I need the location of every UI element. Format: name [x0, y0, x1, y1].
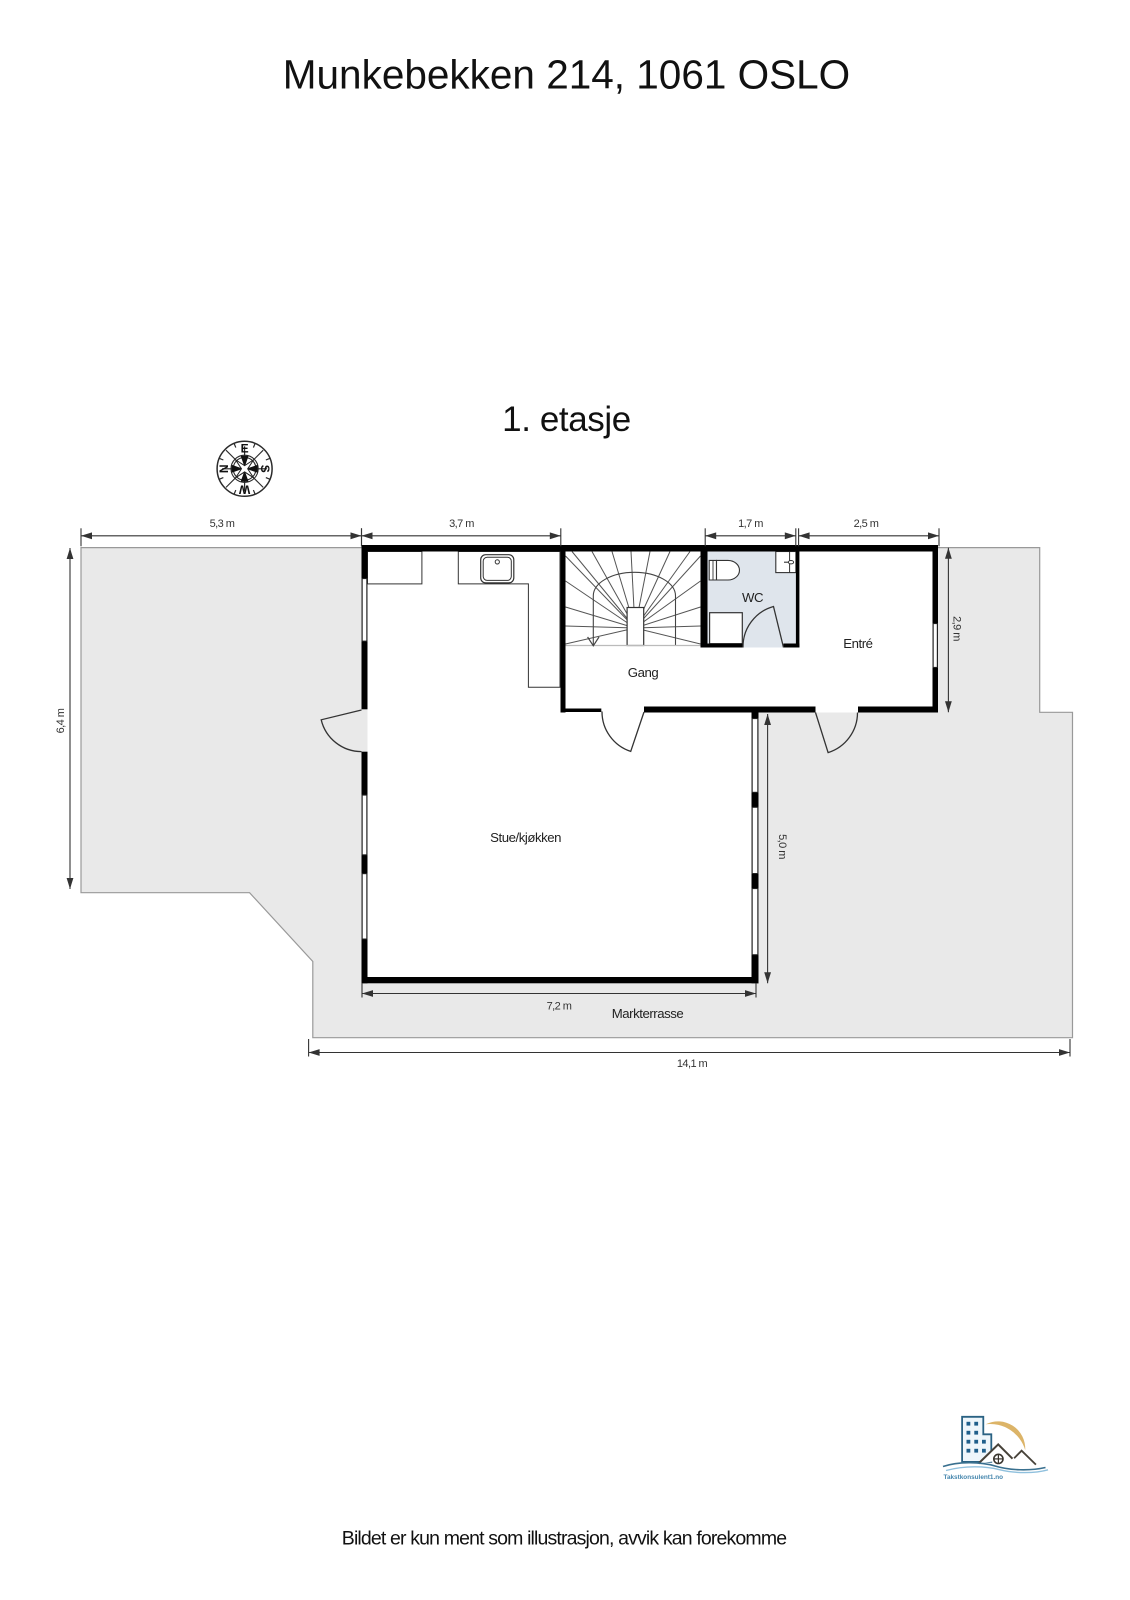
svg-text:1,7 m: 1,7 m	[738, 518, 763, 530]
svg-text:2,9 m: 2,9 m	[951, 616, 963, 641]
svg-text:1. etasje: 1. etasje	[502, 400, 631, 439]
svg-text:5,0 m: 5,0 m	[776, 834, 788, 859]
svg-text:14,1 m: 14,1 m	[677, 1058, 708, 1070]
svg-text:Markterrasse: Markterrasse	[612, 1006, 684, 1021]
svg-text:Bildet er kun ment som illustr: Bildet er kun ment som illustrasjon, avv…	[342, 1528, 786, 1550]
svg-text:S: S	[258, 465, 272, 473]
svg-text:Stue/kjøkken: Stue/kjøkken	[490, 830, 561, 845]
svg-text:N: N	[217, 464, 231, 473]
svg-text:3,7 m: 3,7 m	[449, 518, 474, 530]
svg-text:E: E	[241, 441, 249, 455]
svg-text:Gang: Gang	[628, 665, 659, 680]
svg-text:5,3 m: 5,3 m	[210, 518, 235, 530]
svg-text:6,4 m: 6,4 m	[55, 708, 67, 733]
svg-text:2,5 m: 2,5 m	[854, 518, 879, 530]
svg-text:Takstkonsulent1.no: Takstkonsulent1.no	[944, 1474, 1004, 1481]
svg-text:Munkebekken 214, 1061 OSLO: Munkebekken 214, 1061 OSLO	[283, 52, 850, 98]
svg-text:WC: WC	[742, 590, 764, 605]
svg-text:W: W	[238, 482, 250, 496]
svg-text:7,2 m: 7,2 m	[547, 1001, 572, 1013]
svg-text:Entré: Entré	[843, 636, 872, 651]
